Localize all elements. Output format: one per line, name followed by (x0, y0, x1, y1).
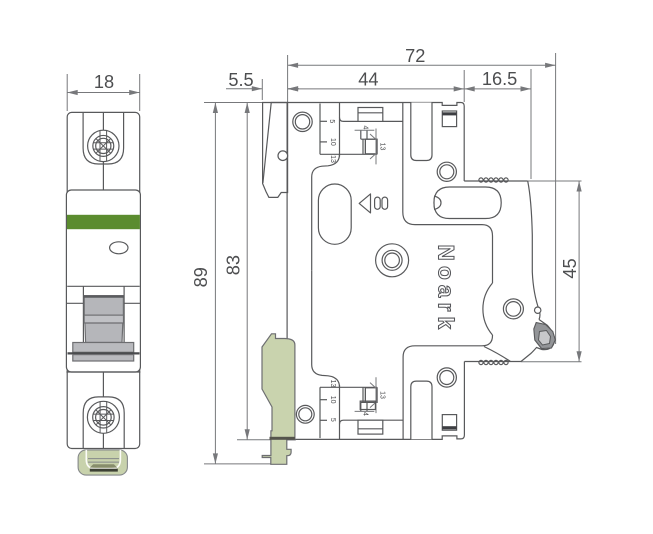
svg-text:5: 5 (329, 418, 336, 422)
svg-text:18: 18 (94, 72, 114, 92)
svg-text:13: 13 (379, 143, 386, 151)
svg-text:4: 4 (362, 126, 369, 130)
svg-text:16.5: 16.5 (482, 69, 517, 89)
svg-text:13: 13 (329, 155, 336, 163)
svg-text:45: 45 (560, 258, 580, 278)
svg-text:44: 44 (358, 70, 378, 90)
svg-text:89: 89 (191, 267, 211, 287)
svg-text:10: 10 (329, 138, 336, 146)
svg-text:72: 72 (405, 46, 425, 66)
svg-text:5: 5 (328, 119, 335, 123)
svg-text:83: 83 (223, 255, 243, 275)
svg-text:13: 13 (329, 380, 336, 388)
svg-text:4: 4 (362, 412, 369, 416)
svg-text:5.5: 5.5 (228, 70, 253, 90)
svg-text:10: 10 (329, 396, 336, 404)
svg-text:Noark: Noark (434, 245, 459, 335)
svg-text:13: 13 (379, 391, 386, 399)
